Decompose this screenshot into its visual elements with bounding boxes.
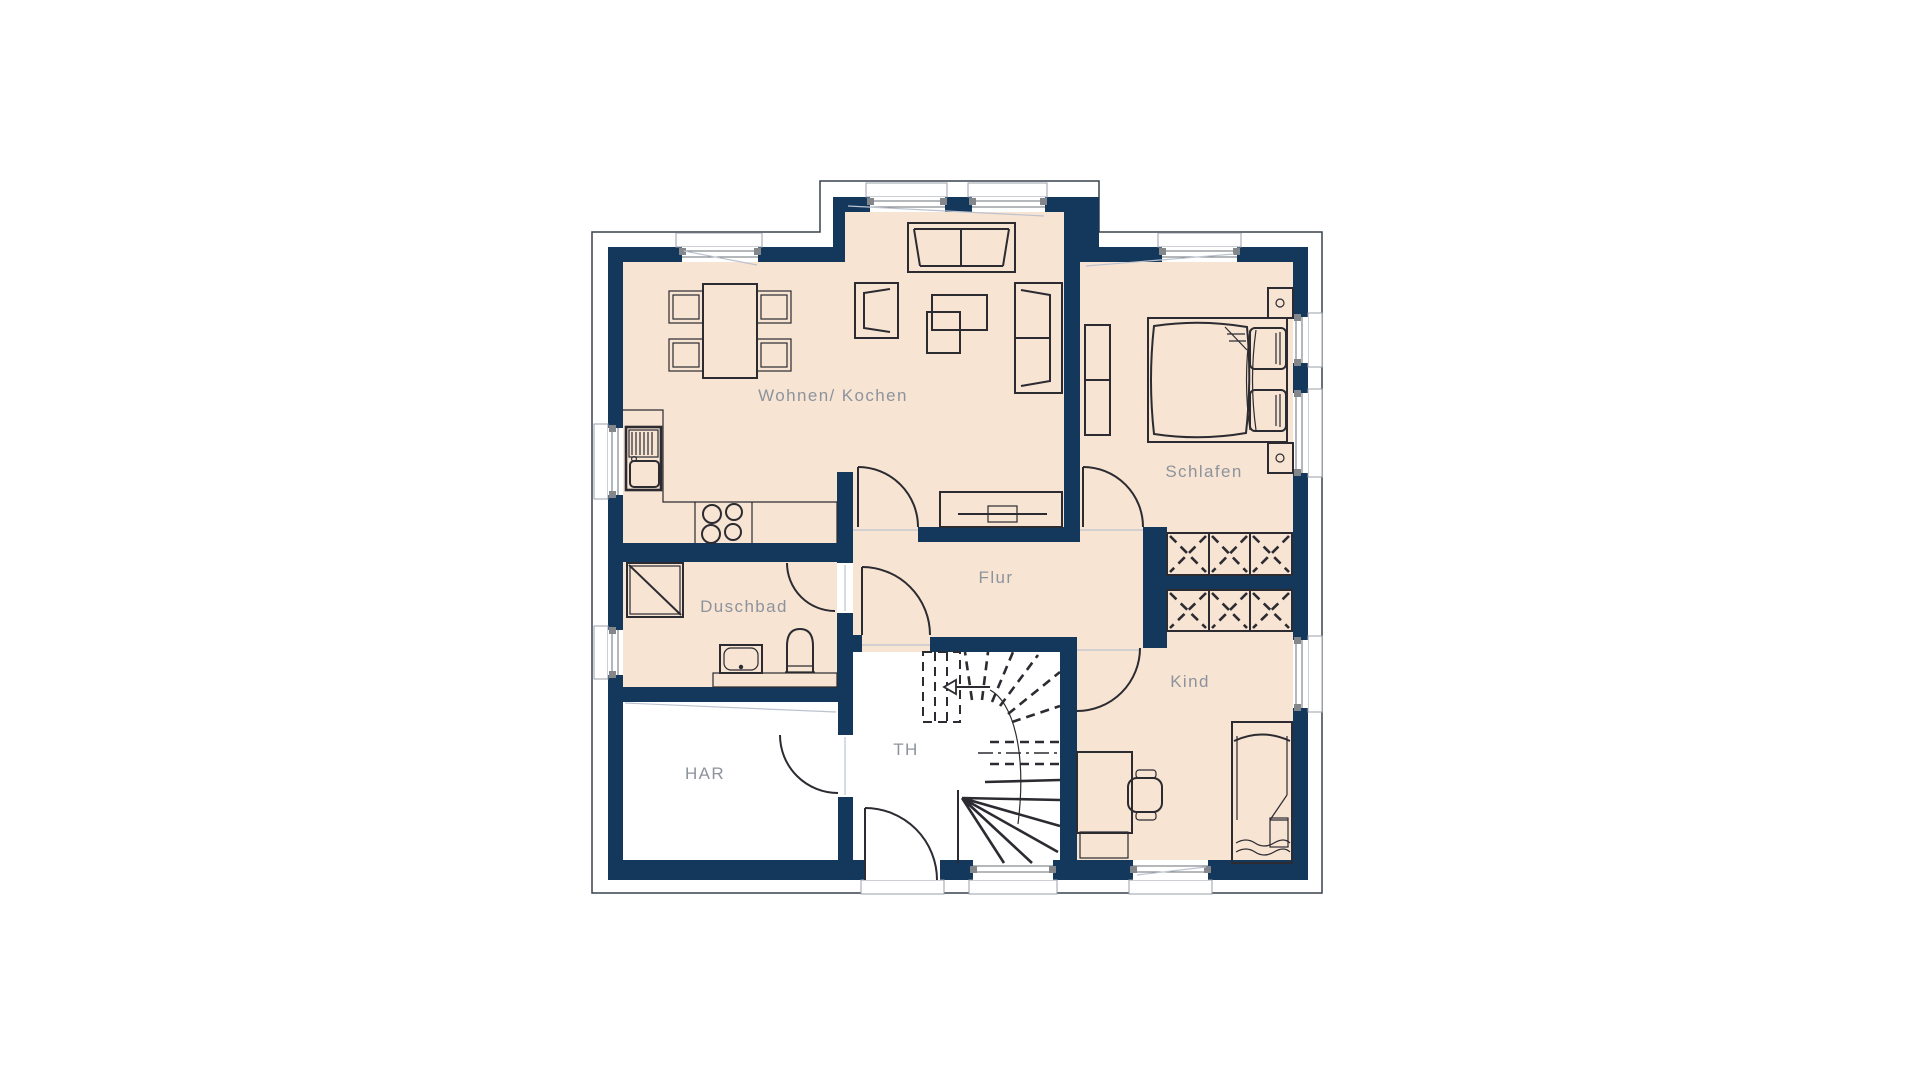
window-icon bbox=[1158, 233, 1241, 262]
room-label-har: HAR bbox=[685, 764, 725, 784]
room-label-duschbad: Duschbad bbox=[700, 597, 788, 617]
window-icon bbox=[968, 183, 1047, 212]
floor-plan-page: Wohnen/ Kochen Schlafen Flur Duschbad Ki… bbox=[0, 0, 1920, 1080]
room-label-schlafen: Schlafen bbox=[1165, 462, 1242, 482]
window-icon bbox=[1129, 860, 1212, 894]
window-icon bbox=[1293, 313, 1322, 367]
floor-plan-drawing bbox=[0, 0, 1920, 1080]
window-icon bbox=[1293, 389, 1322, 477]
window-icon bbox=[594, 424, 623, 499]
window-icon bbox=[969, 860, 1057, 894]
room-label-wohnen-kochen: Wohnen/ Kochen bbox=[758, 386, 908, 406]
wardrobe-x-icon bbox=[1167, 533, 1292, 575]
window-icon bbox=[594, 626, 623, 679]
wardrobe-x-icon bbox=[1167, 590, 1292, 631]
room-label-th: TH bbox=[893, 740, 918, 760]
window-icon bbox=[1293, 636, 1322, 712]
room-label-flur: Flur bbox=[979, 568, 1014, 588]
room-label-kind: Kind bbox=[1170, 672, 1210, 692]
